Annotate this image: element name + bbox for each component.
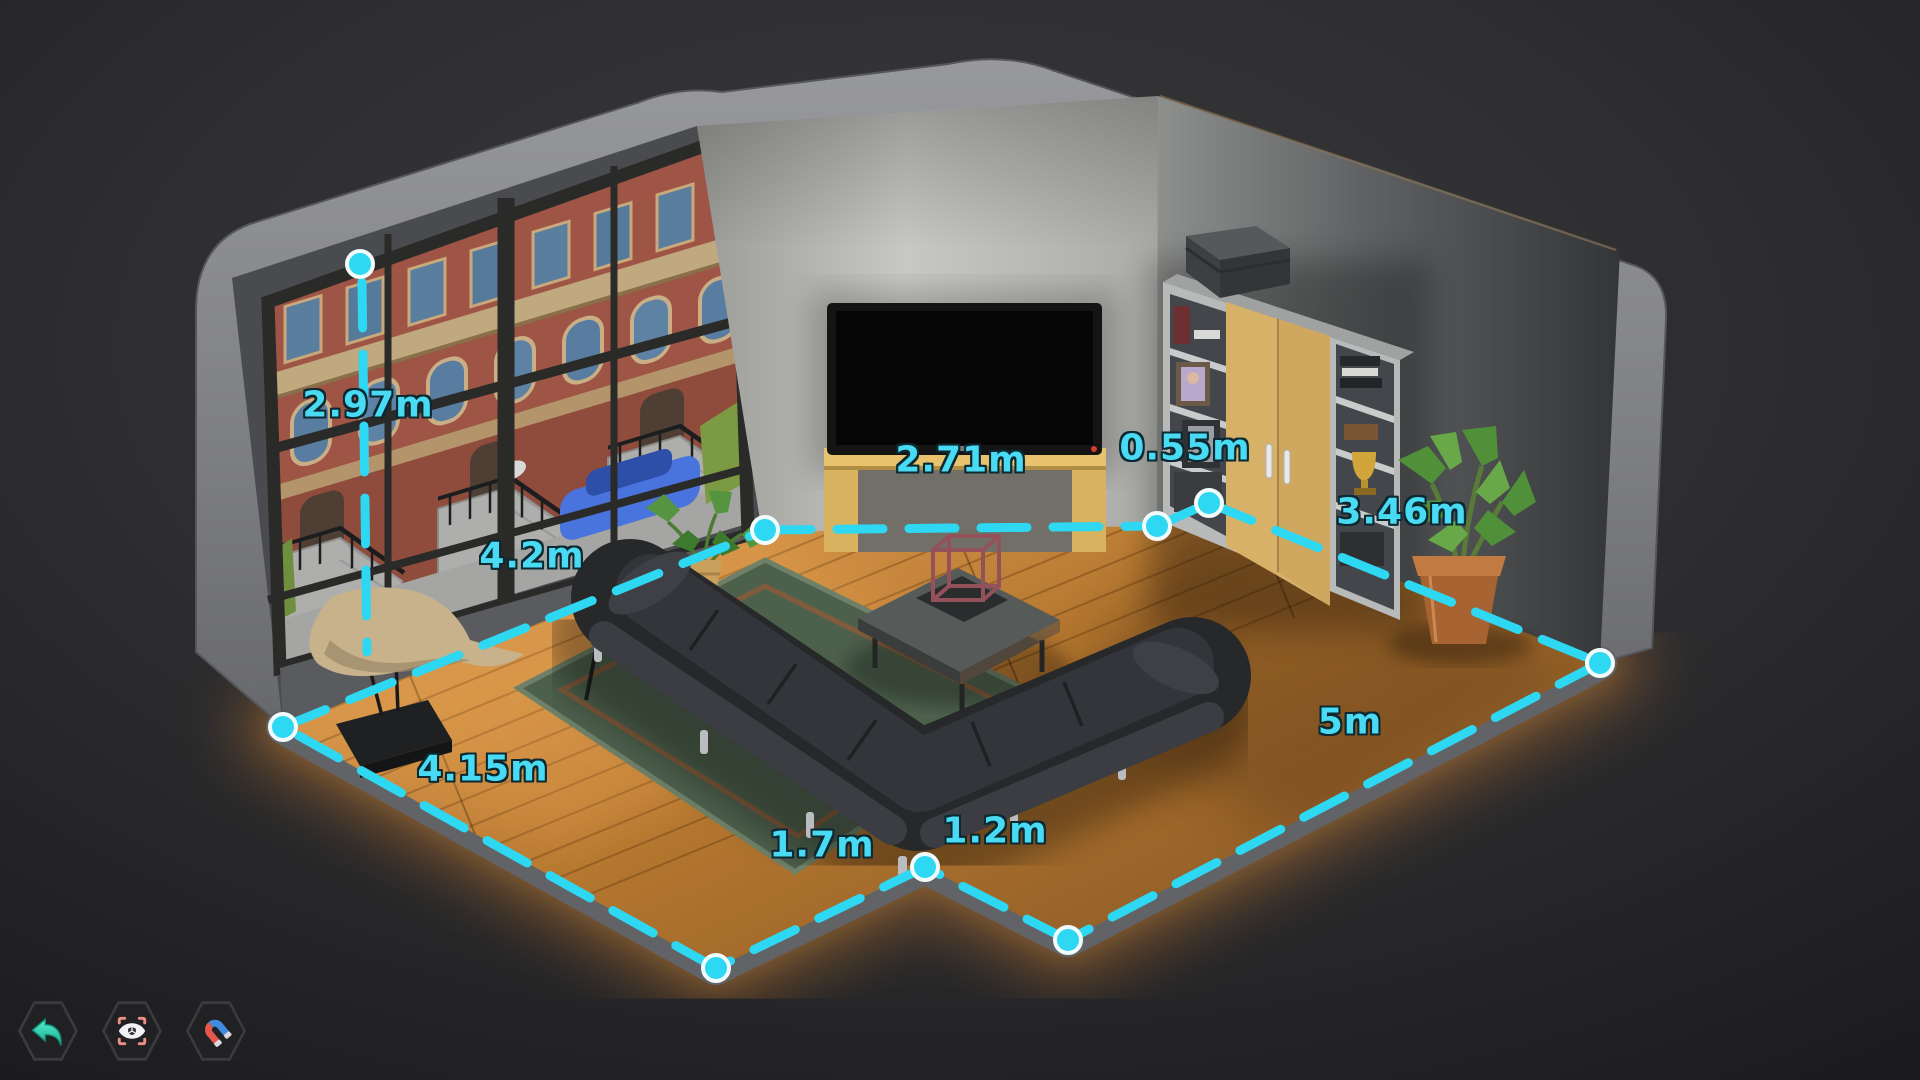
room-3d-scene (0, 0, 1920, 1080)
measure-point-handle[interactable] (703, 955, 729, 981)
measure-point-handle[interactable] (347, 251, 373, 277)
undo-button[interactable] (18, 1000, 78, 1062)
measure-point-handle[interactable] (270, 714, 296, 740)
cube-eye-scan-icon (112, 1011, 152, 1051)
measure-point-handle[interactable] (1144, 513, 1170, 539)
tv-power-led (1091, 446, 1097, 452)
magnet-icon (196, 1011, 236, 1051)
snap-button[interactable] (186, 1000, 246, 1062)
measure-point-handle[interactable] (1587, 650, 1613, 676)
tv[interactable] (827, 303, 1102, 455)
measure-point-handle[interactable] (1055, 927, 1081, 953)
toolbar (18, 1000, 246, 1062)
undo-arrow-icon (28, 1011, 68, 1051)
measure-point-handle[interactable] (752, 517, 778, 543)
view-focus-button[interactable] (102, 1000, 162, 1062)
measure-point-handle[interactable] (912, 854, 938, 880)
tv-logo (950, 446, 970, 451)
trophy (1352, 452, 1376, 495)
measure-point-handle[interactable] (1196, 490, 1222, 516)
room-measure-viewport: 2.97m 4.2m 2.71m 0.55m 3.46m 5m 1.2m 1.7… (0, 0, 1920, 1080)
